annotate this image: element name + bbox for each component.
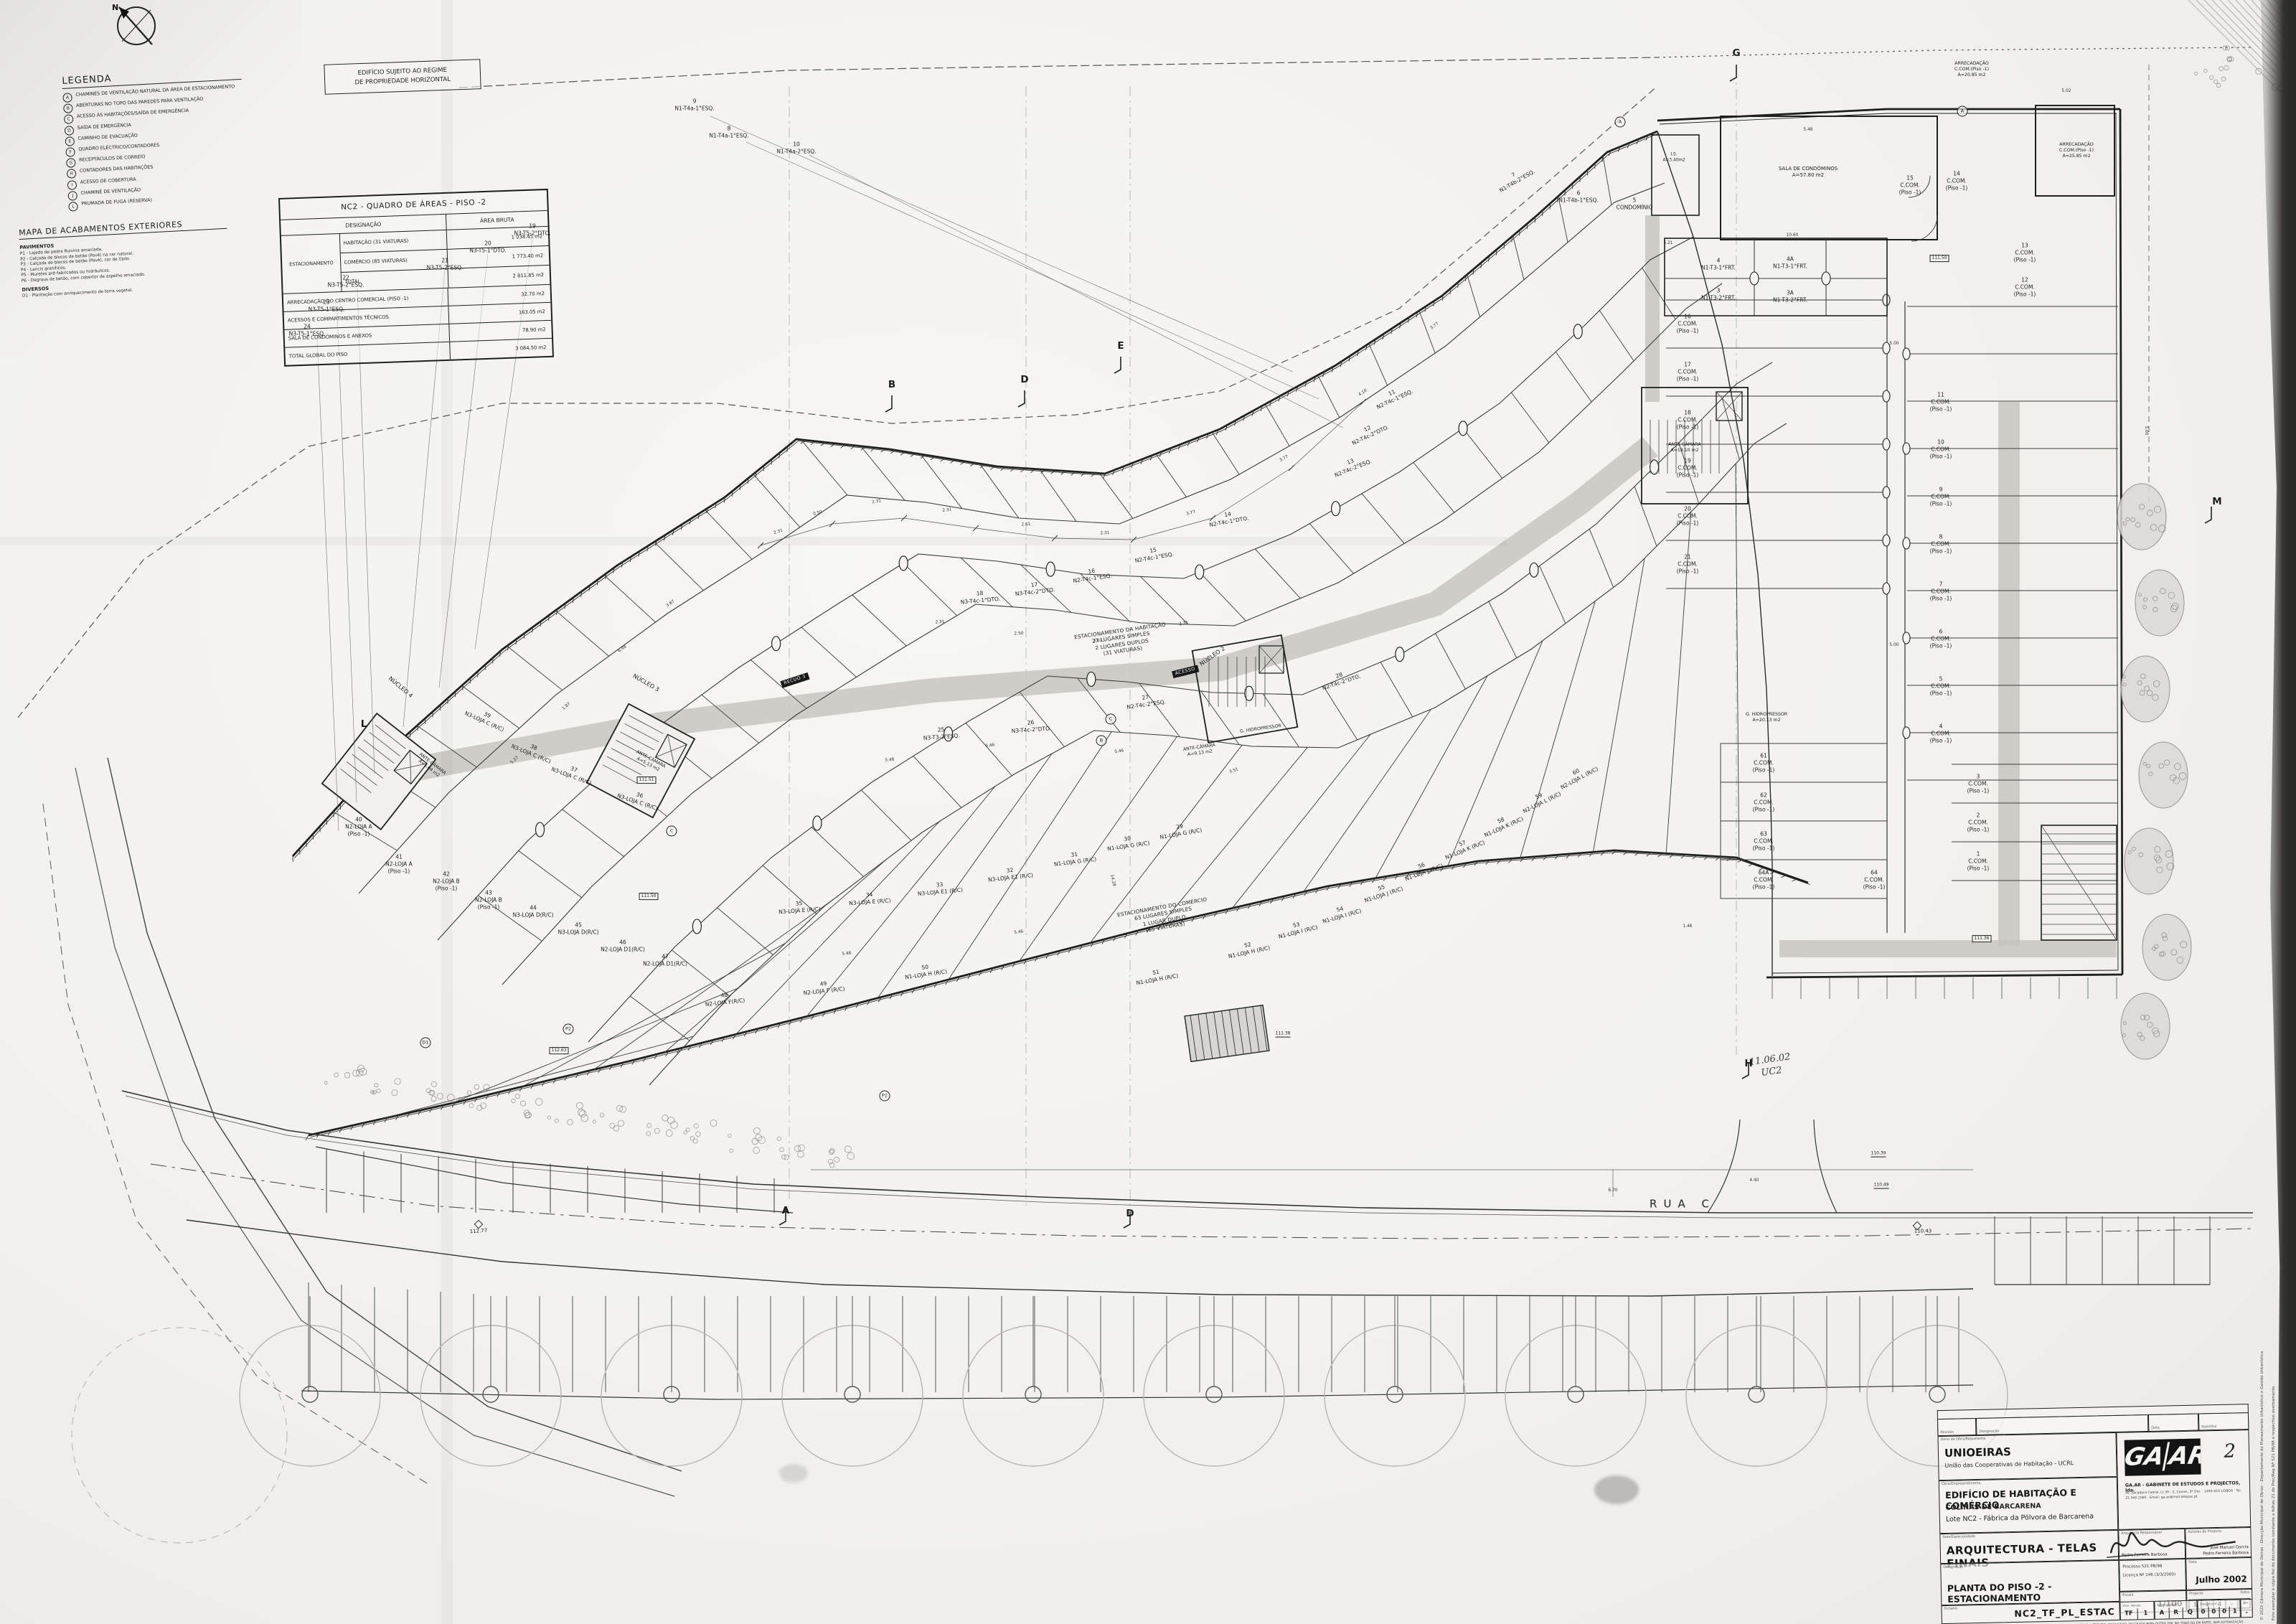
plan-label: 6.48 [618, 644, 629, 654]
plan-label: 58 N1-LOJA K (R/C) [1480, 809, 1525, 839]
plan-label: 11 C.COM. (Piso -1) [1930, 391, 1952, 412]
plan-label: 4.40 [1750, 1178, 1759, 1184]
especialidade-digit: Q [2183, 1607, 2197, 1618]
plan-label: ANTE-CÂMARA A=18.10 m2 [1668, 442, 1700, 454]
plan-label: 111.50 [639, 893, 659, 900]
grid-marker-D: D [1126, 1208, 1134, 1221]
plan-label: 3.77 [1279, 455, 1290, 464]
licenca: Licença Nº 146 (3/3/2000) [2123, 1572, 2176, 1578]
plan-label: 5.46 [1014, 929, 1024, 936]
plan-label: 5.21 [1664, 241, 1673, 247]
plan-label: 6 C.COM. (Piso -1) [1930, 628, 1952, 649]
plan-label: 16 C.COM. (Piso -1) [1677, 313, 1699, 334]
obra-line2: COLINAS DE BARCARENA [1945, 1502, 2041, 1512]
plan-label: 23 N3-T5-1°ESQ. [309, 299, 345, 313]
plan-label: 39 N3-LOJA C (R/C) [464, 703, 508, 733]
data-label: Data [2188, 1561, 2197, 1564]
plan-label: 1.87 [562, 702, 573, 712]
plan-label: ESTACIONAMENTO DO COMÉRCIO 63 LUGARES SI… [1116, 896, 1210, 939]
plan-label: 5 CONDOMÍNIO [1617, 197, 1653, 211]
client-name: UNIOEIRAS [1944, 1445, 2011, 1460]
plan-label: 52 N1-LOJA H (R/C) [1226, 937, 1271, 959]
plan-label: 49 N2-LOJA F (R/C) [802, 978, 845, 996]
plan-label: 17 C.COM. (Piso -1) [1677, 361, 1699, 382]
plan-label: 9 C.COM. (Piso -1) [1930, 486, 1952, 507]
plan-label: 57 N1-LOJA K (R/C) [1441, 832, 1486, 861]
keyed-note: C [667, 826, 677, 837]
fase-digit: TF [2121, 1608, 2137, 1619]
plan-label: ANTE-CÂMARA A=9.13 m2 [1182, 743, 1216, 759]
handwritten-page-number: 2 [2224, 1440, 2236, 1462]
plan-label: 6.70 [1609, 1188, 1618, 1194]
ficheiro-value: NC2_TF_PL_ESTAC [2014, 1606, 2115, 1619]
plan-label: 3.87 [666, 599, 677, 609]
plan-label: 26 N3-T4c-2°DTO. [1011, 718, 1052, 734]
grid-marker-L: L [361, 718, 367, 731]
plan-label: 10.60 [1787, 233, 1799, 239]
plan-label: 4 C.COM. (Piso -1) [1930, 723, 1952, 743]
especialidade-digit: R [2168, 1607, 2183, 1618]
gaar-logo: GAAR [2125, 1438, 2201, 1475]
plan-label: 5.27 [510, 756, 521, 766]
processo: Processo 521 PB/98 [2122, 1564, 2162, 1569]
plan-label: 63 C.COM. (Piso -1) [1753, 830, 1775, 851]
plan-label: 44 N3-LOJA D(R/C) [512, 904, 553, 919]
grid-marker-A: A [782, 1205, 789, 1218]
client-sub: União das Cooperativas de Habitação - UC… [1944, 1460, 2074, 1469]
plan-label: 53 N1-LOJA I (R/C) [1276, 917, 1319, 940]
grid-marker-G: G [1732, 47, 1740, 60]
plan-label: 45 N3-LOJA D(R/C) [557, 921, 598, 936]
plan-label: 2.50 [1014, 632, 1023, 637]
plan-label: 60 N2-LOJA L (R/C) [1556, 759, 1599, 791]
plan-label: 2.31 [935, 620, 944, 626]
plan-label: ARRECADAÇÃO C.COM.(Piso -1) A=20.85 m2 [1954, 61, 1989, 78]
plan-label: G. HIDROPRESSOR [1240, 723, 1282, 735]
plan-label: 61 C.COM. (Piso -1) [1753, 752, 1775, 773]
revisao-value: - [2241, 1609, 2252, 1615]
plan-label: 64A C.COM. (Piso -1) [1753, 869, 1775, 890]
keyed-note: D1 [420, 1038, 431, 1048]
escala-label: Escala [2122, 1593, 2133, 1597]
plan-label: 15 C.COM. (Piso -1) [1899, 174, 1921, 195]
obra-label: Obra/Empreendimento [1942, 1482, 1981, 1486]
especialidade-digit: A [2155, 1607, 2169, 1618]
plan-label: 2.31 [872, 499, 882, 506]
plan-label: 3 N1-T3-2°FRT. [1701, 287, 1736, 301]
plan-label: 5.48 [885, 758, 895, 764]
fase-label: Fase/Especialidade [1942, 1535, 1975, 1539]
plan-label: 14 C.COM. (Piso -1) [1946, 170, 1968, 191]
plan-label: NÚCLEO 2 [1198, 645, 1226, 668]
especialidade-label: Especialidade [2157, 1602, 2177, 1607]
plan-label: 3.77 [1186, 510, 1196, 517]
plan-label: 36 N3-LOJA C (R/C) [616, 786, 661, 812]
plan-label: 43 N2-LOJA B (Piso -1) [475, 889, 502, 910]
plan-label: 12 C.COM. (Piso -1) [2014, 276, 2036, 297]
plan-label: 11 N2-T4c-1°ESQ. [1373, 382, 1414, 411]
plan-label: 1.46 [1683, 924, 1693, 930]
rev-header: Designação [1979, 1430, 1999, 1434]
plan-label: 112.63 [550, 1047, 569, 1054]
plan-label: 42 N2-LOJA B (Piso -1) [433, 870, 460, 891]
grid-marker-B: B [888, 379, 895, 392]
plan-label: 8 C.COM. (Piso -1) [1930, 533, 1952, 554]
plan-label: 111.36 [1972, 935, 1992, 942]
plan-label: 111.51 [637, 776, 657, 784]
fase-versao-labels: Fase Versão [2122, 1603, 2140, 1607]
plan-label: I.S. A=3.40m2 [1662, 152, 1685, 163]
keyed-note: A [1615, 117, 1626, 128]
plan-label: 3.51 [1229, 767, 1240, 775]
plan-label: 21 C.COM. (Piso -1) [1677, 553, 1699, 574]
plan-label: 111.38 [1276, 1031, 1291, 1038]
ficheiro-label: Ficheiro [1944, 1607, 1957, 1611]
plan-label: 5.00 [2142, 426, 2148, 436]
plan-label: 14.28 [1109, 874, 1116, 887]
plan-label: 2 C.COM. (Piso -1) [1967, 812, 1990, 832]
desenho-digit: 1 [2229, 1606, 2240, 1617]
plan-label: 37 N3-LOJA C (R/C) [550, 759, 595, 787]
versao-digit: 1 [2137, 1608, 2154, 1619]
plan-label: 11.06.02 UC2 [1749, 1051, 1793, 1081]
plan-label: 50 N1-LOJA H (R/C) [903, 961, 947, 981]
plan-label: 5.02 [2062, 89, 2071, 95]
obra-line3: Lote NC2 - Fábrica da Pólvora de Barcare… [1946, 1513, 2094, 1524]
plan-label: 111.50 [1930, 255, 1949, 262]
plan-label: NÚCLEO 4 [387, 675, 414, 700]
plan-label: 34 N3-LOJA E (R/C) [848, 890, 891, 907]
plan-label: 46 N2-LOJA D1(R/C) [601, 939, 645, 953]
plan-label: ACESSO [1172, 665, 1199, 679]
plan-label: 0.50 [813, 510, 823, 518]
keyed-note: A [1957, 106, 1968, 117]
plan-label: 3.61 [1093, 639, 1102, 644]
plan-label: 19 C.COM. (Piso -1) [1677, 457, 1699, 478]
keyed-note: P1 [880, 1091, 890, 1102]
plan-label: ARRECADAÇÃO C.COM.(Piso -1) A=25.85 m2 [2059, 142, 2094, 159]
plan-label: 2.31 [773, 528, 784, 536]
desenho-num-label: Desenho nº [2200, 1602, 2216, 1605]
plan-label: 56 N1-LOJA J (R/C) [1401, 855, 1444, 882]
scanned-architectural-sheet: { "north": {"label": "N"}, "hp_box": {"l… [0, 0, 2296, 1624]
plan-label: 64 C.COM. (Piso -1) [1863, 869, 1886, 890]
rev-header: Data [2151, 1427, 2160, 1430]
plan-label: 48 N2-LOJA F(R/C) [704, 990, 745, 1008]
grid-marker-D: D [1020, 374, 1028, 387]
plan-label: 25 N3-T3-2°ESQ. [923, 726, 960, 742]
plan-label: 29 N1-LOJA G (R/C) [1158, 820, 1203, 841]
plan-label: 4A N1-T3-1°FRT. [1773, 255, 1807, 270]
plan-label: 5 C.COM. (Piso -1) [1930, 675, 1952, 696]
plan-label: 24 N3-T5-1°ESQ. [289, 323, 326, 337]
plan-label: 2.31 [1100, 531, 1109, 537]
plan-label: 31 N1-LOJA G (R/C) [1053, 849, 1096, 868]
plan-label: 35 N3-LOJA E (R/C) [778, 898, 821, 916]
plan-label: 33 N3-LOJA E1 (R/C) [917, 880, 964, 898]
plan-label: RUA C [1650, 1197, 1716, 1211]
plan-label: 41 N2-LOJA A (Piso -1) [385, 853, 413, 874]
plan-label: 5.48 [842, 952, 852, 958]
plan-label: 51 N1-LOJA H (R/C) [1134, 965, 1179, 987]
plan-label: 14 N2-T4c-1°DTO. [1208, 508, 1249, 529]
plan-label: 1 C.COM. (Piso -1) [1967, 850, 1990, 871]
folha-label: Folha [2240, 1591, 2249, 1595]
plan-label: G. HIDROPRESSOR A=20.13 m2 [1746, 712, 1787, 723]
desenho-digit: 0 [2219, 1607, 2229, 1618]
plan-label: 47 N2-LOJA D1(R/C) [643, 953, 687, 967]
plan-label: 18 N3-T4c-1°DTO. [960, 588, 1001, 606]
plan-annotations: 9 N1-T4a-1°ESQ.8 N1-T4a-1°ESQ.10 N1-T4a-… [0, 0, 2296, 1624]
plan-label: 19 N3-T5-2°DTO. [514, 222, 550, 237]
plan-label: 21 N3-T5-2°ESQ. [427, 257, 464, 271]
plan-label: 7 C.COM. (Piso -1) [1930, 581, 1952, 601]
plan-label: 2.31 [942, 508, 952, 515]
keyed-note: C [1106, 714, 1116, 725]
plan-label: RECUO 3 [780, 672, 809, 688]
keyed-note: B [1096, 736, 1107, 746]
plan-label: 110.49 [1874, 1183, 1889, 1189]
keyed-note: P2 [563, 1024, 574, 1035]
plan-label: 20 N3-T5-1°DTO. [469, 240, 506, 254]
plan-label: 18 C.COM. (Piso -1) [1677, 409, 1699, 430]
plan-label: 2.31 [1179, 621, 1189, 628]
plan-label: 6 N1-T4b-1°ESQ. [1558, 189, 1599, 204]
plan-label: 10 C.COM. (Piso -1) [1930, 438, 1952, 459]
plan-label: 59 N2-LOJA L (R/C) [1519, 784, 1563, 815]
plan-label: 13 C.COM. (Piso -1) [2014, 242, 2036, 263]
plan-label: 110.39 [1871, 1151, 1886, 1158]
firm-address: Av. Sacadura Cabral, Lt 39 - 2, Caxias, … [2125, 1489, 2244, 1501]
margin-stamp-2: Este exemplar é cópia fiel do documento … [2272, 1385, 2276, 1620]
plan-label: 4 N1-T3-1°FRT. [1701, 257, 1736, 271]
plan-label: 54 N1-LOJA I (R/C) [1319, 901, 1362, 925]
plan-label: 5.46 [1114, 748, 1124, 755]
rev-header: Substitui [2201, 1425, 2216, 1429]
plan-label: 55 N1-LOJA J (R/C) [1361, 878, 1403, 904]
rev-header: Revisão [1940, 1431, 1954, 1435]
plan-label: ANTE-CÂMARA A=5.04 m2 [414, 752, 447, 782]
data-value: Julho 2002 [2196, 1574, 2247, 1585]
plan-label: 4.10 [1358, 388, 1369, 398]
desenho-digit: 0 [2198, 1607, 2208, 1618]
plan-label: 110.43 [1914, 1228, 1932, 1234]
designacao-label: Designação [1943, 1565, 1963, 1569]
grid-marker-E: E [1117, 340, 1124, 353]
plan-label: 12 N2-T4c-2°DTO. [1348, 417, 1390, 446]
plan-label: 32 N3-LOJA E1 (R/C) [987, 865, 1034, 883]
plan-label: 27 N2-T4c-2°ESQ. [1125, 692, 1166, 711]
plan-label: 3 C.COM. (Piso -1) [1967, 773, 1990, 794]
plan-label: NÚCLEO 3 [631, 672, 661, 693]
plan-label: 3.77 [1430, 321, 1441, 332]
plan-label: 13 N2-T4c-2°ESQ. [1331, 451, 1373, 479]
plan-label: 5.00 [1890, 643, 1899, 649]
grid-marker-M: M [2212, 496, 2221, 509]
plan-label: 10 N1-T4a-2°ESQ. [776, 141, 816, 155]
plan-label: 3A N1-T3-2°FRT. [1773, 289, 1807, 304]
plan-label: 28 N2-T4c-2°DTO. [1319, 666, 1362, 692]
plan-label: 17 N3-T4c-2°DTO. [1014, 579, 1055, 597]
desenho-title: PLANTA DO PISO -2 - ESTACIONAMENTO [1947, 1580, 2119, 1605]
plan-label: 22 N3-T5-2°ESQ. [328, 274, 364, 288]
projecto-label: Projecto [2189, 1592, 2203, 1595]
plan-label: 16 N2-T4c-1°ESQ. [1071, 565, 1112, 585]
plan-label: 7 N1-T4b-2°ESQ. [1495, 162, 1536, 194]
plan-label: 8 N1-T4a-1°ESQ. [709, 125, 748, 139]
plan-label: ANTE-CÂMARA A=5.13 m2 [632, 749, 666, 774]
plan-label: 112.77 [469, 1228, 487, 1236]
plan-label: 5.46 [985, 743, 995, 749]
plan-label: 40 N2-LOJA A (Piso -1) [345, 816, 372, 837]
revisao-label: Rev. [2243, 1601, 2249, 1604]
plan-label: 5.00 [1890, 342, 1899, 347]
grid-marker-H: H [1744, 1058, 1752, 1071]
plan-label: 5.48 [1804, 128, 1813, 133]
client-label: Dono da Obra/Requerente [1941, 1437, 1986, 1442]
plan-label: 2.61 [1021, 522, 1030, 528]
plan-label: 30 N1-LOJA G (R/C) [1106, 832, 1150, 853]
plan-label: SALA DE CONDÓMINOS A=57.80 m2 [1779, 166, 1838, 179]
margin-stamp-1: © 2022 Câmara Municipal de Oeiras - Dire… [2260, 1351, 2264, 1620]
desenho-digit: 0 [2208, 1607, 2219, 1618]
title-block: Revisão Designação Data Substitui Dono d… [1937, 1404, 2253, 1624]
plan-label: 15 N2-T4c-1°ESQ. [1133, 544, 1174, 565]
plan-label: ESTACIONAMENTO DA HABITAÇÃO 27 LUGARES S… [1074, 621, 1170, 661]
plan-label: 62 C.COM. (Piso -1) [1753, 792, 1775, 812]
plan-label: 20 C.COM. (Piso -1) [1677, 505, 1699, 526]
plan-label: 9 N1-T4a-1°ESQ. [674, 98, 714, 112]
